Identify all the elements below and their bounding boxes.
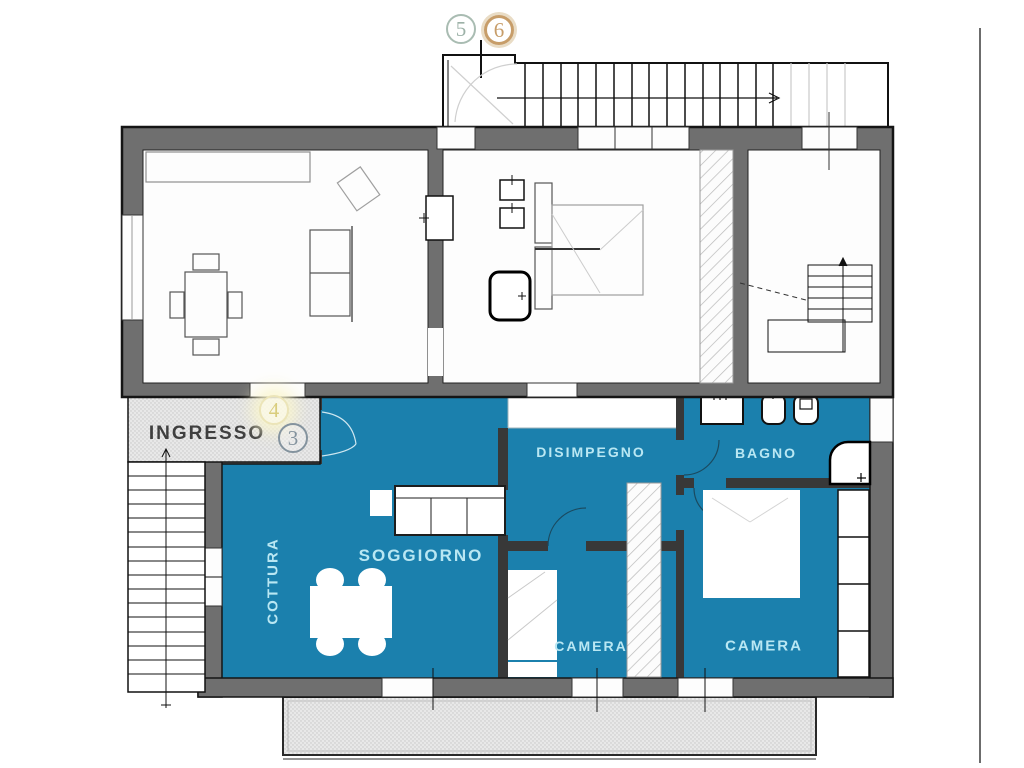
room-label-soggiorno: SOGGIORNO <box>359 546 484 566</box>
room-label-bagno: BAGNO <box>735 445 797 461</box>
room-label-cottura: COTTURA <box>265 537 282 624</box>
marker-6: 6 <box>484 15 514 45</box>
wardrobe-cells <box>838 490 869 677</box>
marker-4: 4 <box>259 395 289 425</box>
top-staircase <box>443 40 888 127</box>
sink-icon <box>701 397 743 424</box>
void-opening <box>508 395 682 428</box>
room-label-camera-1: CAMERA <box>554 638 627 654</box>
external-staircase <box>128 449 205 708</box>
floor-plan-canvas: INGRESSO DISIMPEGNO BAGNO SOGGIORNO COTT… <box>0 0 1024 768</box>
wardrobe-hatched-upper <box>700 150 733 383</box>
marker-3: 3 <box>278 423 308 453</box>
bidet-icon <box>762 395 785 424</box>
room-label-disimpegno: DISIMPEGNO <box>536 444 645 460</box>
side-table <box>370 490 392 516</box>
double-bed <box>703 490 800 598</box>
sink-icon <box>426 196 453 240</box>
upper-floor-plan <box>122 112 893 397</box>
single-bed <box>508 570 557 660</box>
room-label-camera-2: CAMERA <box>725 638 803 655</box>
marker-5: 5 <box>446 14 476 44</box>
sofa <box>395 486 505 535</box>
room-label-ingresso: INGRESSO <box>149 423 265 445</box>
floor-plan-drawing <box>0 0 1024 768</box>
terrace <box>283 697 816 759</box>
wardrobe-hatched <box>627 483 661 677</box>
